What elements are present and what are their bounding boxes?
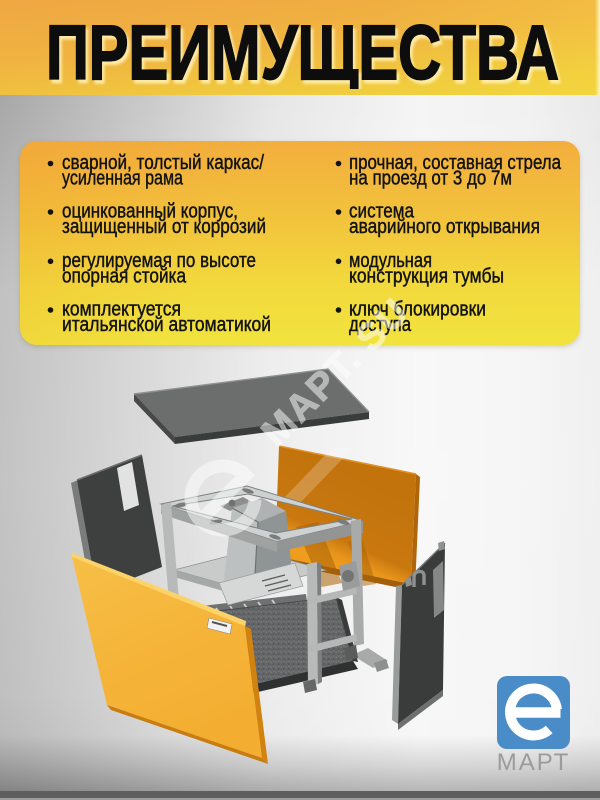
- svg-text:МАРТ: МАРТ: [497, 749, 571, 776]
- svg-text:МАРТ.SU: МАРТ.SU: [254, 290, 418, 454]
